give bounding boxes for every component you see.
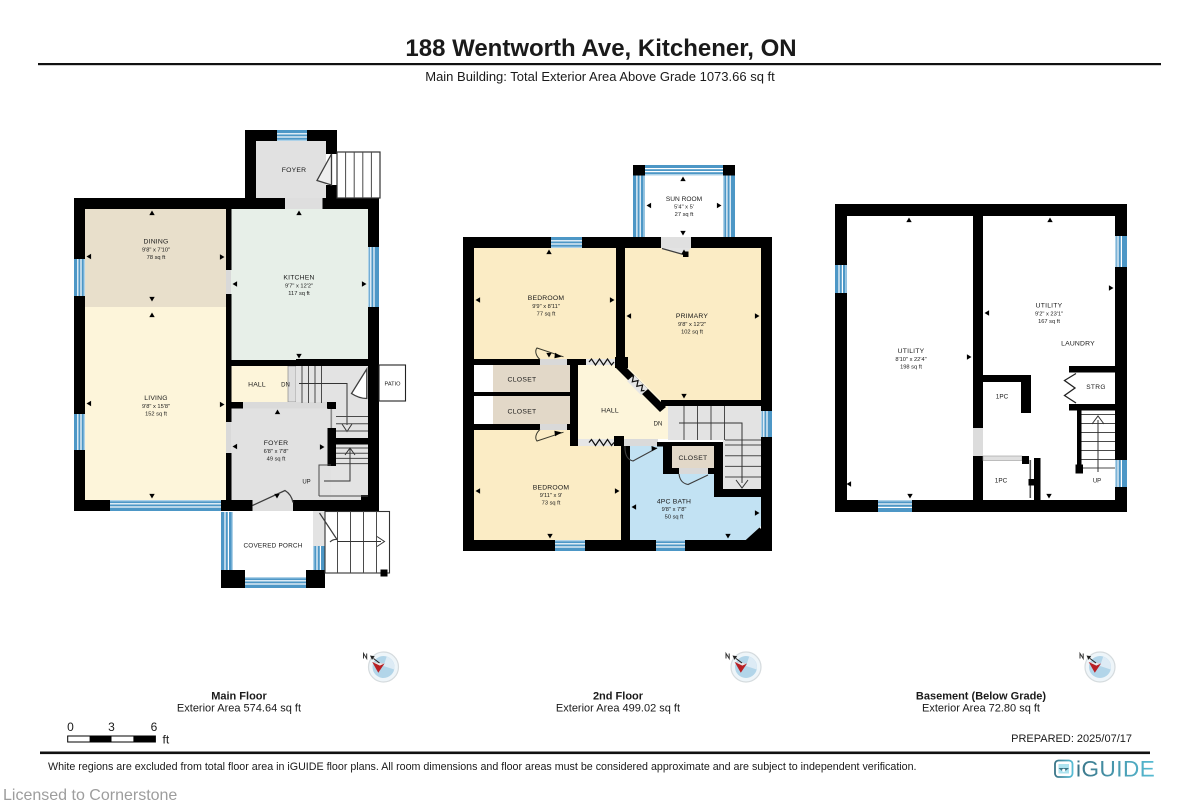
svg-text:9'7" x 12'2": 9'7" x 12'2" (285, 284, 313, 290)
svg-text:Exterior Area 499.02 sq ft: Exterior Area 499.02 sq ft (556, 703, 680, 715)
svg-text:9'8" x 7'8": 9'8" x 7'8" (662, 507, 687, 513)
svg-text:DN: DN (281, 383, 290, 389)
svg-text:9'9" x 8'11": 9'9" x 8'11" (532, 304, 560, 310)
svg-text:9'8" x 15'8": 9'8" x 15'8" (142, 404, 170, 410)
svg-text:9'2" x 23'1": 9'2" x 23'1" (1035, 312, 1063, 318)
svg-text:188 Wentworth Ave, Kitchener,: 188 Wentworth Ave, Kitchener, ON (405, 35, 796, 62)
svg-text:6'8" x 7'8": 6'8" x 7'8" (264, 449, 289, 455)
svg-text:0: 0 (67, 720, 74, 734)
svg-text:50 sq ft: 50 sq ft (665, 515, 684, 521)
svg-text:iGUIDE: iGUIDE (1076, 757, 1155, 782)
svg-text:BEDROOM: BEDROOM (533, 485, 570, 492)
svg-text:3: 3 (108, 720, 115, 734)
svg-text:STRG: STRG (1086, 384, 1106, 391)
svg-text:PATIO: PATIO (385, 382, 402, 388)
svg-text:ft: ft (163, 733, 170, 747)
svg-text:117 sq ft: 117 sq ft (288, 291, 310, 297)
svg-text:152 sq ft: 152 sq ft (145, 412, 167, 418)
svg-text:SUN ROOM: SUN ROOM (666, 196, 702, 203)
svg-text:Exterior Area 72.80 sq ft: Exterior Area 72.80 sq ft (922, 703, 1040, 715)
svg-text:Main Floor: Main Floor (211, 691, 267, 703)
svg-text:5'4" x 5': 5'4" x 5' (674, 205, 694, 211)
svg-text:COVERED PORCH: COVERED PORCH (243, 543, 302, 550)
svg-text:UP: UP (302, 480, 310, 486)
svg-text:78 sq ft: 78 sq ft (147, 255, 166, 261)
svg-text:CLOSET: CLOSET (508, 409, 537, 416)
svg-text:Main Building: Total Exterior: Main Building: Total Exterior Area Above… (425, 69, 775, 84)
svg-text:8'10" x 22'4": 8'10" x 22'4" (895, 357, 926, 363)
svg-text:Exterior Area 574.64 sq ft: Exterior Area 574.64 sq ft (177, 703, 301, 715)
svg-text:HALL: HALL (248, 382, 266, 389)
svg-text:PRIMARY: PRIMARY (676, 313, 709, 320)
svg-text:BEDROOM: BEDROOM (528, 295, 565, 302)
svg-text:1PC: 1PC (995, 478, 1008, 485)
svg-text:198 sq ft: 198 sq ft (900, 365, 922, 371)
svg-text:UTILITY: UTILITY (898, 348, 925, 355)
svg-text:White regions are excluded fro: White regions are excluded from total fl… (48, 761, 917, 773)
svg-text:LIVING: LIVING (144, 395, 168, 402)
svg-text:CLOSET: CLOSET (508, 377, 537, 384)
svg-text:FOYER: FOYER (264, 440, 288, 447)
svg-text:167 sq ft: 167 sq ft (1038, 319, 1060, 325)
svg-text:UTILITY: UTILITY (1036, 303, 1063, 310)
svg-text:CLOSET: CLOSET (679, 455, 708, 462)
svg-text:49 sq ft: 49 sq ft (267, 457, 286, 463)
svg-text:KITCHEN: KITCHEN (283, 275, 314, 282)
svg-text:UP: UP (1093, 479, 1101, 485)
svg-text:6: 6 (151, 720, 158, 734)
svg-text:2nd Floor: 2nd Floor (593, 691, 644, 703)
svg-text:9'8" x 7'10": 9'8" x 7'10" (142, 248, 170, 254)
svg-text:77 sq ft: 77 sq ft (537, 312, 556, 318)
svg-text:102 sq ft: 102 sq ft (681, 330, 703, 336)
svg-text:73 sq ft: 73 sq ft (542, 501, 561, 507)
svg-text:HALL: HALL (601, 408, 619, 415)
svg-text:DN: DN (654, 422, 663, 428)
svg-text:Licensed to Cornerstone: Licensed to Cornerstone (3, 787, 177, 804)
svg-text:LAUNDRY: LAUNDRY (1061, 341, 1095, 348)
svg-text:Basement (Below Grade): Basement (Below Grade) (916, 691, 1047, 703)
svg-text:DINING: DINING (144, 239, 169, 246)
svg-text:4PC BATH: 4PC BATH (657, 499, 691, 506)
svg-text:FOYER: FOYER (282, 167, 306, 174)
svg-text:1PC: 1PC (996, 394, 1009, 401)
svg-text:27 sq ft: 27 sq ft (675, 212, 694, 218)
svg-text:9'8" x 12'2": 9'8" x 12'2" (678, 322, 706, 328)
svg-text:PREPARED: 2025/07/17: PREPARED: 2025/07/17 (1011, 733, 1132, 745)
svg-text:9'11" x 9': 9'11" x 9' (540, 493, 562, 499)
